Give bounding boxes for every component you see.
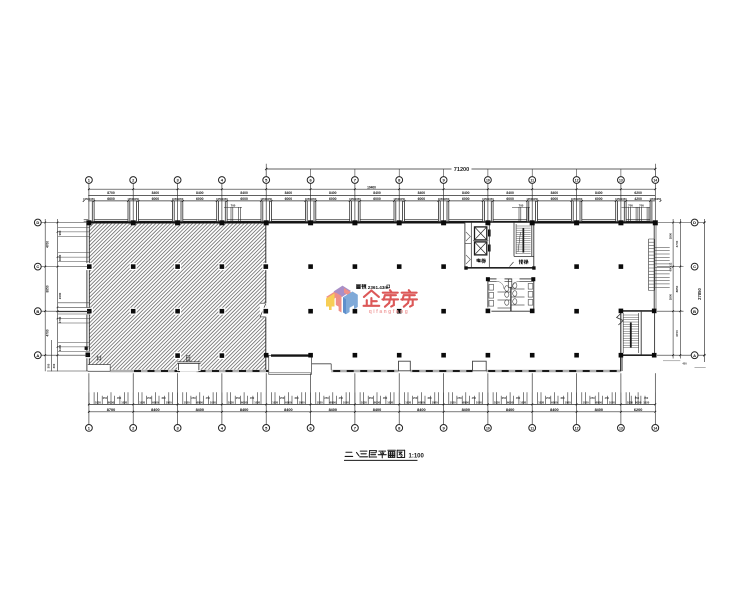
svg-text:B: B (36, 309, 39, 314)
svg-text:6200: 6200 (634, 191, 642, 195)
svg-text:2361.43m: 2361.43m (368, 285, 389, 290)
svg-text:1020: 1020 (643, 400, 649, 404)
svg-text:10: 10 (486, 427, 490, 431)
svg-text:10: 10 (486, 179, 490, 183)
svg-text:1020: 1020 (583, 400, 589, 404)
svg-text:10501050: 10501050 (571, 197, 583, 201)
svg-text:1020: 1020 (494, 400, 500, 404)
svg-text:250: 250 (369, 396, 374, 400)
svg-text:8400: 8400 (462, 408, 470, 412)
svg-text:250: 250 (191, 396, 196, 400)
svg-text:6000: 6000 (418, 400, 425, 404)
svg-text:700: 700 (628, 203, 633, 207)
svg-text:250: 250 (280, 396, 285, 400)
svg-text:12: 12 (575, 427, 579, 431)
svg-text:8400: 8400 (506, 408, 514, 412)
svg-text:6000: 6000 (285, 400, 292, 404)
svg-text:6000: 6000 (152, 400, 159, 404)
svg-text:6000: 6000 (462, 197, 470, 201)
svg-text:10501050: 10501050 (615, 197, 627, 201)
svg-text:250: 250 (324, 396, 329, 400)
svg-text:D: D (36, 220, 39, 225)
svg-text:6000: 6000 (418, 197, 426, 201)
svg-text:6000: 6000 (108, 400, 115, 404)
svg-text:1020: 1020 (627, 400, 633, 404)
svg-text:8400: 8400 (152, 191, 160, 195)
svg-text:10400: 10400 (367, 185, 376, 189)
svg-text:4700: 4700 (675, 240, 679, 247)
svg-text:2800: 2800 (669, 293, 673, 300)
svg-text:8400: 8400 (240, 408, 248, 412)
svg-text:450: 450 (294, 396, 299, 400)
svg-text:250: 250 (546, 396, 551, 400)
svg-text:1020: 1020 (139, 400, 145, 404)
svg-text:450: 450 (117, 396, 122, 400)
svg-text:6200: 6200 (634, 408, 642, 412)
svg-text:6000: 6000 (196, 197, 204, 201)
svg-text:6000: 6000 (373, 197, 381, 201)
svg-text:qifangfang: qifangfang (369, 309, 410, 315)
svg-text:6000: 6000 (506, 197, 514, 201)
svg-text:10501050: 10501050 (83, 197, 95, 201)
svg-text:10501050: 10501050 (305, 197, 317, 201)
svg-text:6000: 6000 (374, 400, 381, 404)
svg-text:8850: 8850 (46, 285, 50, 292)
svg-text:8700: 8700 (107, 191, 115, 195)
svg-text:B: B (693, 309, 696, 314)
svg-text:6000: 6000 (329, 197, 337, 201)
svg-text:8400: 8400 (196, 408, 204, 412)
svg-text:A: A (36, 353, 39, 358)
svg-text:1020: 1020 (228, 400, 234, 404)
svg-text:10501050: 10501050 (216, 197, 228, 201)
svg-text:11: 11 (530, 427, 534, 431)
svg-text:10501050: 10501050 (172, 197, 184, 201)
svg-text:A: A (693, 353, 696, 358)
svg-text:14: 14 (653, 427, 657, 431)
svg-text:8400: 8400 (329, 191, 337, 195)
svg-text:8400: 8400 (418, 191, 426, 195)
svg-text:450: 450 (383, 396, 388, 400)
svg-text:450: 450 (161, 396, 166, 400)
svg-text:1:100: 1:100 (409, 454, 425, 460)
svg-text:700: 700 (639, 203, 644, 207)
svg-text:6600: 6600 (107, 197, 115, 201)
svg-text:13: 13 (619, 179, 623, 183)
svg-text:27850: 27850 (697, 288, 702, 300)
svg-text:2800: 2800 (669, 232, 673, 239)
svg-text:6000: 6000 (330, 400, 337, 404)
svg-text:8400: 8400 (550, 408, 558, 412)
svg-text:450: 450 (206, 396, 211, 400)
svg-text:4700: 4700 (46, 329, 50, 336)
svg-text:1020: 1020 (272, 400, 278, 404)
svg-text:6000: 6000 (197, 400, 204, 404)
svg-text:10501050: 10501050 (526, 197, 538, 201)
svg-text:10501050: 10501050 (349, 197, 361, 201)
svg-text:8400: 8400 (595, 191, 603, 195)
svg-text:8400: 8400 (551, 191, 559, 195)
svg-text:250: 250 (147, 396, 152, 400)
svg-text:250: 250 (413, 396, 418, 400)
svg-text:1020: 1020 (95, 400, 101, 404)
svg-text:8400: 8400 (240, 191, 248, 195)
svg-text:250: 250 (635, 396, 640, 400)
svg-text:6000: 6000 (635, 400, 642, 404)
svg-text:8400: 8400 (373, 191, 381, 195)
svg-text:450: 450 (250, 396, 255, 400)
svg-text:10501050: 10501050 (393, 197, 405, 201)
svg-text:1020: 1020 (184, 400, 190, 404)
svg-text:4700: 4700 (46, 241, 50, 248)
svg-text:8400: 8400 (462, 191, 470, 195)
svg-text:D: D (693, 220, 696, 225)
svg-text:450: 450 (516, 396, 521, 400)
svg-text:2700: 2700 (58, 316, 62, 323)
svg-text:14: 14 (653, 179, 657, 183)
svg-text:1020: 1020 (450, 400, 456, 404)
svg-text:1100: 1100 (58, 344, 62, 351)
svg-text:8700: 8700 (107, 408, 115, 412)
svg-text:700: 700 (231, 203, 236, 207)
svg-text:6000: 6000 (285, 197, 293, 201)
svg-text:900: 900 (58, 230, 62, 235)
svg-text:450: 450 (682, 362, 687, 366)
svg-text:450: 450 (339, 396, 344, 400)
svg-text:1020: 1020 (538, 400, 544, 404)
svg-text:1020: 1020 (317, 400, 323, 404)
svg-text:6000: 6000 (596, 400, 603, 404)
svg-text:450: 450 (644, 396, 649, 400)
svg-text:1020: 1020 (405, 400, 411, 404)
svg-text:1900: 1900 (58, 292, 62, 299)
svg-text:8400: 8400 (506, 191, 514, 195)
svg-text:450: 450 (427, 396, 432, 400)
svg-text:300: 300 (47, 363, 51, 368)
svg-text:6000: 6000 (551, 197, 559, 201)
svg-text:6000: 6000 (595, 197, 603, 201)
svg-text:11: 11 (530, 179, 534, 183)
svg-text:71200: 71200 (454, 167, 470, 173)
svg-text:6000: 6000 (152, 197, 160, 201)
svg-text:250: 250 (590, 396, 595, 400)
svg-text:4200: 4200 (634, 197, 642, 201)
svg-text:8400: 8400 (417, 408, 425, 412)
svg-text:6000: 6000 (240, 197, 248, 201)
svg-text:450: 450 (472, 396, 477, 400)
svg-text:300: 300 (52, 363, 56, 368)
svg-text:250: 250 (457, 396, 462, 400)
svg-text:13: 13 (619, 427, 623, 431)
svg-text:10501050: 10501050 (127, 197, 139, 201)
svg-text:8400: 8400 (285, 191, 293, 195)
svg-text:6000: 6000 (507, 400, 514, 404)
svg-text:1020: 1020 (361, 400, 367, 404)
svg-text:6000: 6000 (551, 400, 558, 404)
svg-text:6000: 6000 (463, 400, 470, 404)
svg-text:250: 250 (236, 396, 241, 400)
svg-text:8400: 8400 (284, 408, 292, 412)
svg-text:8400: 8400 (595, 408, 603, 412)
svg-text:10501050: 10501050 (482, 197, 494, 201)
svg-text:10501050: 10501050 (260, 197, 272, 201)
svg-text:10501050: 10501050 (438, 197, 450, 201)
svg-text:6000: 6000 (241, 400, 248, 404)
svg-text:3000: 3000 (58, 254, 62, 261)
svg-text:250: 250 (502, 396, 507, 400)
svg-text:250: 250 (103, 396, 108, 400)
svg-text:700: 700 (519, 203, 524, 207)
svg-text:10501050: 10501050 (650, 197, 662, 201)
svg-text:450: 450 (605, 396, 610, 400)
svg-text:8400: 8400 (151, 408, 159, 412)
svg-text:C: C (693, 264, 696, 269)
svg-text:8850: 8850 (675, 285, 679, 292)
svg-text:600x12: 600x12 (669, 262, 673, 271)
svg-text:8400: 8400 (196, 191, 204, 195)
svg-text:4700: 4700 (675, 330, 679, 337)
svg-text:C: C (36, 264, 39, 269)
svg-text:8400: 8400 (329, 408, 337, 412)
svg-text:450: 450 (560, 396, 565, 400)
svg-text:12: 12 (575, 179, 579, 183)
svg-text:8400: 8400 (373, 408, 381, 412)
